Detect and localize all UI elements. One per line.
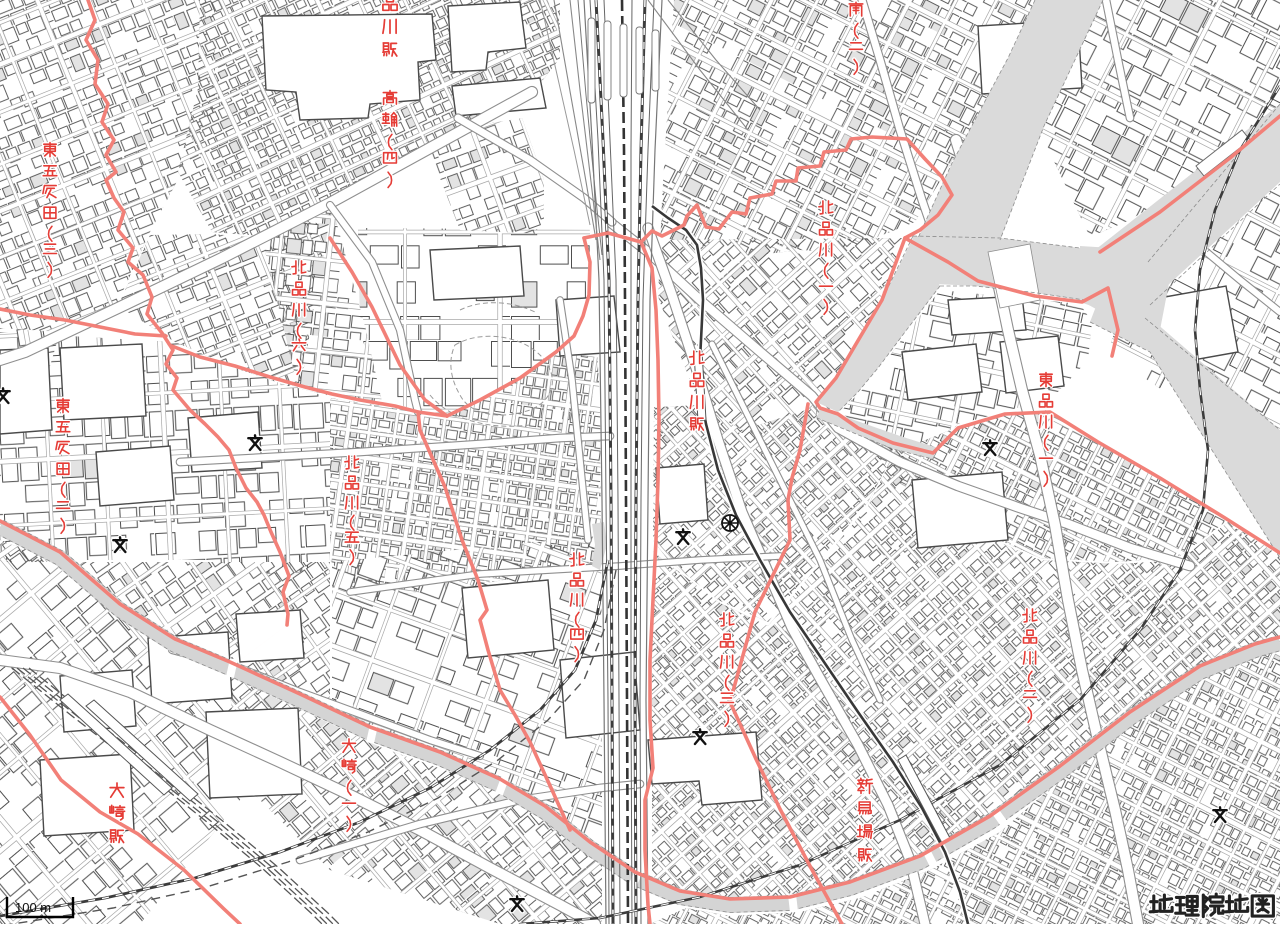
svg-text:100 m: 100 m (15, 900, 51, 915)
